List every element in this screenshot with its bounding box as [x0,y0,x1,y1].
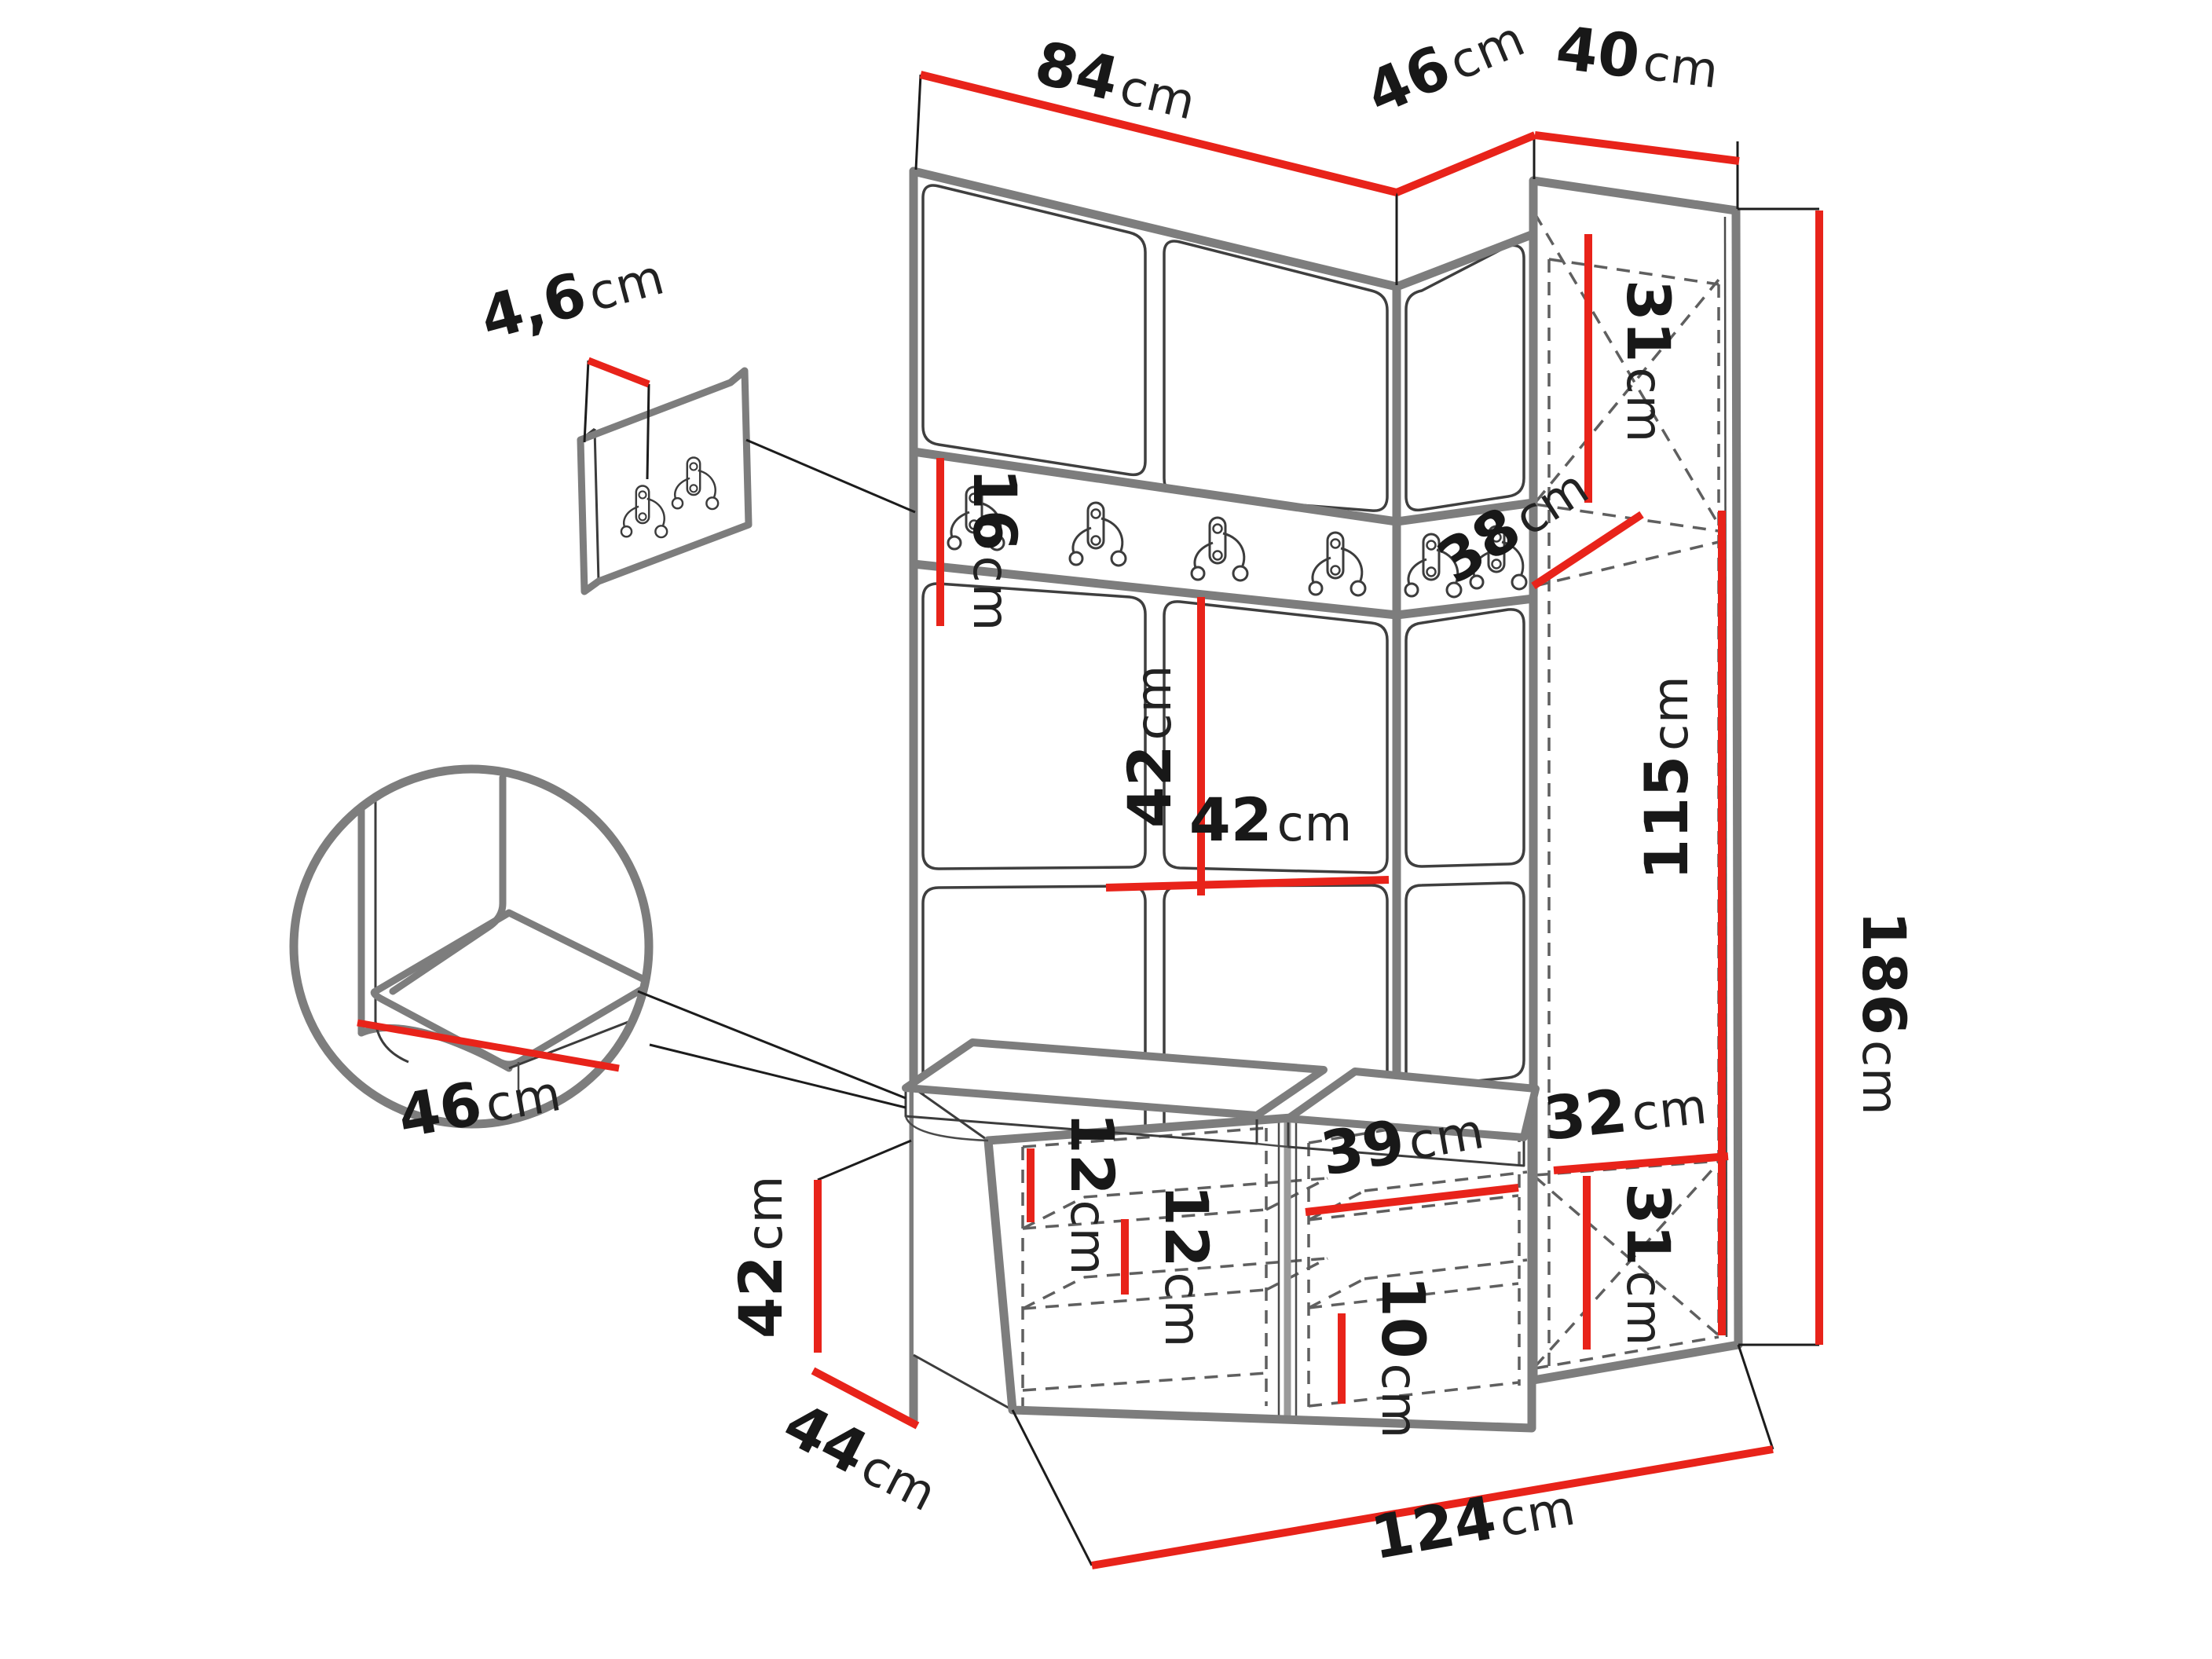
dim-bench-gap-top: 12cm [1057,1112,1127,1276]
panel-top-left [923,185,1145,474]
dim-cabinet-interior-height: 115cm [1632,675,1701,880]
panel-mid-left [923,584,1145,869]
panel-low-angled [1406,883,1524,1086]
dim-top-width-angled: 46cm [1356,0,1533,128]
dim-panel-width: 42cm [1189,785,1353,855]
hook-panel-detail: 4,6cm [473,238,915,591]
dim-bench-height: 42cm [726,1175,796,1339]
dim-line-40 [1535,135,1739,161]
dim-bench-gap-mid: 12cm [1152,1185,1221,1348]
dim-hook-panel-thickness: 4,6cm [473,238,671,353]
dim-panel-height: 42cm [1115,665,1185,828]
dim-total-width: 124cm [1366,1468,1580,1573]
dim-line-46 [1397,135,1535,192]
dim-bench-gap-bottom: 10cm [1368,1276,1438,1439]
dim-top-width-cabinet: 40cm [1552,13,1723,102]
dim-total-height: 186cm [1849,910,1919,1115]
panel-mid-angled [1406,610,1524,866]
dim-cabinet-top-compartment: 31cm [1613,280,1683,443]
dim-line-panel-thickness [588,361,649,384]
furniture-dimension-diagram: 4,6cm 46cm 84cm 46cm 40cm 16cm 42cm [0,0,2212,1659]
diagram-stage: 4,6cm 46cm 84cm 46cm 40cm 16cm 42cm [0,0,2212,1659]
cushion-detail-circle: 46cm [294,766,906,1152]
detail-pointer-lines [638,991,906,1108]
dim-cabinet-bottom-compartment: 31cm [1613,1183,1683,1346]
dim-top-width-main: 84cm [1029,27,1204,134]
hook-panel-pointer-line [746,440,915,512]
dim-rail-height: 16cm [960,468,1030,632]
